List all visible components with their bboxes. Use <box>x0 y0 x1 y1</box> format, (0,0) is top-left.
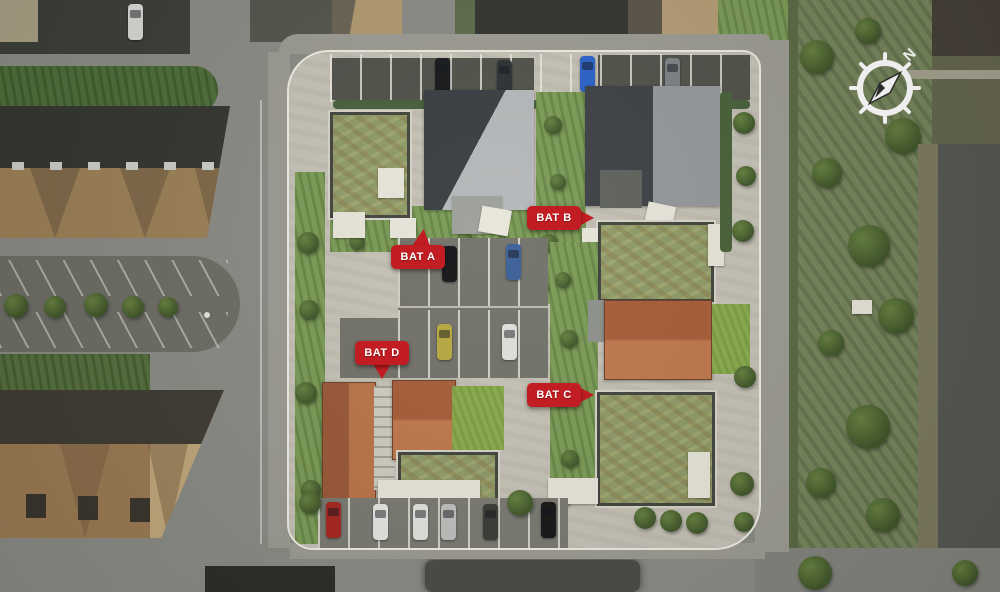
car <box>502 324 517 360</box>
shrub <box>555 272 571 288</box>
shrub <box>297 232 319 254</box>
lawn <box>452 386 504 450</box>
car <box>437 324 452 360</box>
car <box>373 504 388 540</box>
bush <box>634 507 656 529</box>
tree <box>952 560 978 586</box>
tree <box>730 472 754 496</box>
curb-line <box>260 100 262 544</box>
dormer <box>202 162 214 170</box>
dormer <box>78 496 98 520</box>
tree <box>878 298 914 334</box>
terrace <box>333 212 365 238</box>
tree <box>846 405 890 449</box>
compass-needle <box>864 67 905 108</box>
tree <box>84 293 108 317</box>
building-bat-a-gable-roof <box>424 90 534 210</box>
tree <box>507 490 533 516</box>
hedge-line <box>788 0 798 550</box>
tree <box>734 512 754 532</box>
patio <box>378 168 404 198</box>
dormer <box>50 162 62 170</box>
existing-roof-dark <box>205 566 335 592</box>
tree <box>732 220 754 242</box>
tree <box>736 166 756 186</box>
terrace <box>390 218 416 238</box>
shrub <box>299 492 321 514</box>
existing-building-row <box>0 106 230 238</box>
shrub <box>544 116 562 134</box>
building-bat-d2-roof <box>392 380 456 460</box>
field-shed <box>852 300 872 314</box>
roof-shadow <box>425 560 640 592</box>
development-site <box>287 50 761 550</box>
building-bat-b-annex <box>600 170 642 208</box>
parking-stripes <box>0 260 228 296</box>
tree <box>848 225 890 267</box>
dormer <box>26 494 46 518</box>
marker-bat-d-label: BAT D <box>364 347 399 359</box>
dormer <box>130 498 150 522</box>
car <box>128 4 143 40</box>
terrace <box>378 480 480 500</box>
dormer <box>88 162 100 170</box>
tree <box>44 296 66 318</box>
shrub <box>299 300 319 320</box>
car <box>413 504 428 540</box>
terrace <box>688 452 710 498</box>
tree <box>818 330 844 356</box>
tree <box>812 158 842 188</box>
roof-light-section <box>653 86 720 206</box>
lawn <box>712 304 750 374</box>
dormer <box>12 162 24 170</box>
car <box>506 244 521 280</box>
green-verge <box>0 354 150 392</box>
tree <box>806 468 836 498</box>
building-bat-b-green-roof <box>598 222 714 302</box>
field-dark-brown <box>932 0 1000 56</box>
tree <box>866 498 900 532</box>
marker-bat-b-label: BAT B <box>536 212 571 224</box>
tree <box>798 556 832 590</box>
marker-bat-b[interactable]: BAT B <box>527 206 581 230</box>
marker-bat-c-label: BAT C <box>536 389 571 401</box>
car <box>326 502 341 538</box>
tree <box>158 297 178 317</box>
street-parking-lot <box>0 256 240 352</box>
tree <box>733 112 755 134</box>
shrub <box>561 450 579 468</box>
car <box>435 58 450 94</box>
parking-dividers <box>398 310 548 378</box>
shrub <box>560 330 578 348</box>
dormer <box>126 162 138 170</box>
building-bat-d-roof <box>322 382 376 502</box>
patio <box>478 206 512 237</box>
car <box>541 502 556 538</box>
building-bat-c-roof <box>604 300 712 380</box>
bush <box>660 510 682 532</box>
tree <box>4 294 28 318</box>
walkway <box>374 386 394 490</box>
car <box>441 504 456 540</box>
parking-stripes <box>0 312 228 348</box>
tree <box>122 296 144 318</box>
bush <box>686 512 708 534</box>
roof-north-face <box>0 390 224 444</box>
car <box>483 504 498 540</box>
roof-north-face <box>0 106 230 168</box>
tree <box>734 366 756 388</box>
building-bat-a-green-roof <box>330 112 410 218</box>
existing-building-row <box>0 390 224 538</box>
marker-bat-a[interactable]: BAT A <box>391 245 445 269</box>
existing-roof-tan <box>0 0 38 42</box>
marker-bat-a-label: BAT A <box>401 251 436 263</box>
marker-bat-d[interactable]: BAT D <box>355 341 409 365</box>
parking-line <box>398 306 548 308</box>
shrub <box>295 382 317 404</box>
shrub <box>550 174 566 190</box>
aerial-site-plan: BAT A BAT B BAT C BAT D N <box>0 0 1000 592</box>
compass-icon: N <box>843 46 927 130</box>
tree <box>855 18 881 44</box>
light-pole <box>204 312 210 318</box>
tree <box>800 40 834 74</box>
hedge-strip <box>720 92 732 252</box>
marker-bat-c[interactable]: BAT C <box>527 383 581 407</box>
compass-north-label: N <box>900 46 920 65</box>
field-tan-strip <box>918 144 940 548</box>
field-dark-gray <box>938 144 1000 548</box>
dormer <box>164 162 176 170</box>
